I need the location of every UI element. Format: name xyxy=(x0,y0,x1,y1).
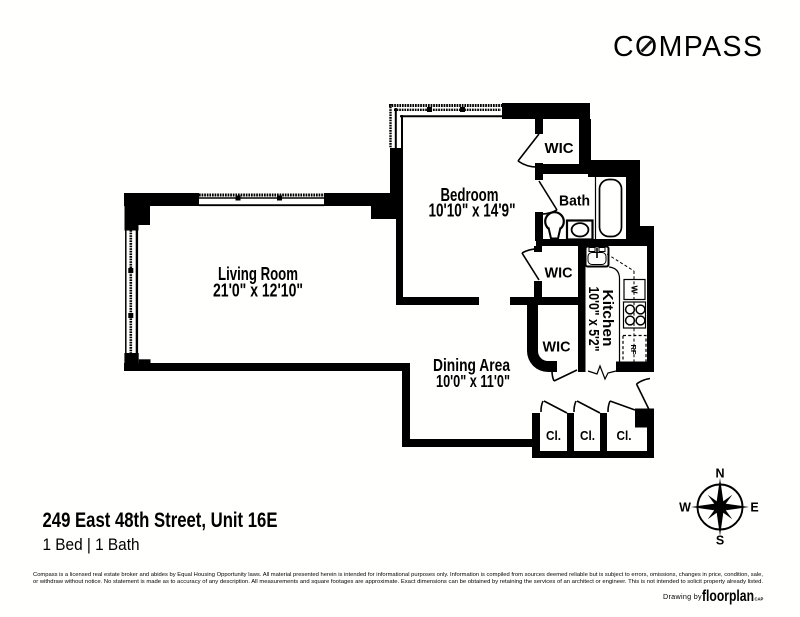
svg-text:WIC: WIC xyxy=(545,265,573,282)
svg-text:or withdraw without notice. No: or withdraw without notice. No statement… xyxy=(33,579,763,585)
svg-text:Cl.: Cl. xyxy=(546,428,561,443)
svg-text:Cl.: Cl. xyxy=(580,428,595,443)
svg-text:COMPASS: COMPASS xyxy=(613,31,763,63)
svg-text:E: E xyxy=(750,501,758,515)
svg-text:RF: RF xyxy=(629,345,638,355)
svg-text:Cl.: Cl. xyxy=(617,428,632,443)
svg-text:N: N xyxy=(715,467,724,481)
svg-text:Bath: Bath xyxy=(559,193,590,210)
svg-text:W: W xyxy=(630,285,640,294)
svg-text:1 Bed | 1 Bath: 1 Bed | 1 Bath xyxy=(43,535,140,554)
svg-text:10'0" x 11'0": 10'0" x 11'0" xyxy=(436,371,510,391)
svg-text:Compass is a licensed real est: Compass is a licensed real estate broker… xyxy=(33,572,763,578)
svg-text:21'0" x 12'10": 21'0" x 12'10" xyxy=(213,281,303,301)
svg-text:CAP: CAP xyxy=(755,597,764,602)
svg-text:249 East 48th Street, Unit 16E: 249 East 48th Street, Unit 16E xyxy=(43,509,278,532)
svg-text:W: W xyxy=(679,501,691,515)
svg-text:floorplan: floorplan xyxy=(702,588,754,605)
svg-text:10'10" x 14'9": 10'10" x 14'9" xyxy=(429,201,516,221)
svg-text:10'0" x 5'2": 10'0" x 5'2" xyxy=(585,287,601,352)
svg-text:S: S xyxy=(716,534,724,548)
svg-text:WIC: WIC xyxy=(545,140,574,157)
svg-text:Drawing by: Drawing by xyxy=(663,592,702,601)
svg-text:WIC: WIC xyxy=(543,339,571,356)
